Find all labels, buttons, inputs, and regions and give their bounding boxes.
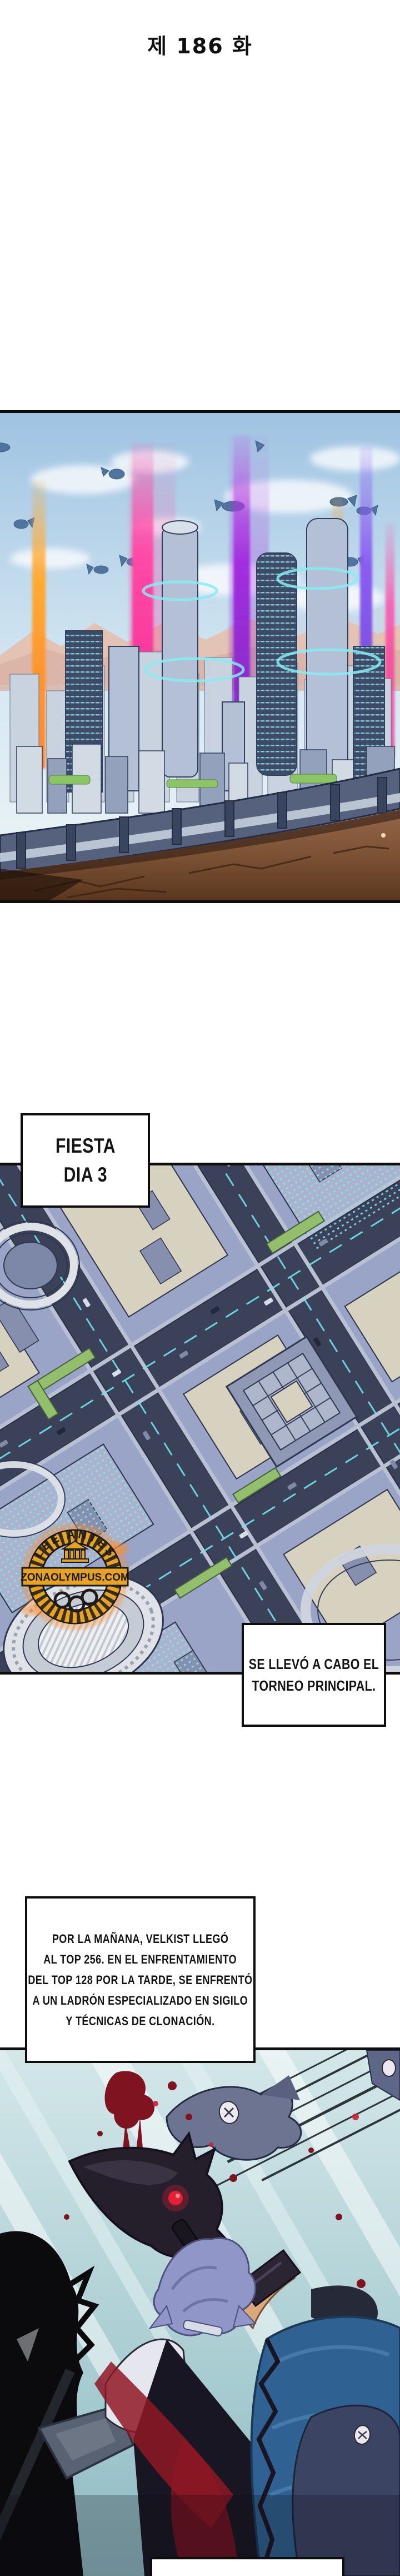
caption-line: FIESTA — [55, 1132, 115, 1160]
caption-line: AL TOP 256. EN EL ENFRENTAMIENTO — [44, 1949, 237, 1970]
caption-line: Y TÉCNICAS DE CLONACIÓN. — [66, 2011, 214, 2031]
watermark-stamp: LEE ANTES ZONAOLYMPUS.COM — [21, 1528, 129, 1626]
caption-line: DIA 3 — [63, 1160, 107, 1189]
battle-art — [0, 2050, 400, 2576]
caption-box-morning: POR LA MAÑANA, VELKIST LLEGÓ AL TOP 256.… — [25, 1896, 256, 2063]
caption-box-torneo: SE LLEVÓ A CABO EL TORNEO PRINCIPAL. — [242, 1623, 386, 1727]
panel-city-skyline — [0, 410, 400, 903]
caption-line: A UN LADRÓN ESPECIALIZADO EN SIGILO — [33, 1990, 248, 2011]
watermark-site-label: ZONAOLYMPUS.COM — [21, 1572, 129, 1583]
chapter-title: 제 186 화 — [0, 29, 400, 59]
caption-line: SE LLEVÓ A CABO EL — [249, 1653, 379, 1675]
panel-aerial-city: LEE ANTES ZONAOLYMPUS.COM — [0, 1163, 400, 1675]
city-skyline-art — [0, 413, 400, 900]
panel-battle — [0, 2047, 400, 2576]
caption-line: TORNEO PRINCIPAL. — [252, 1675, 376, 1697]
caption-box-cutoff — [150, 2557, 344, 2576]
aerial-city-art: LEE ANTES ZONAOLYMPUS.COM — [0, 1165, 400, 1672]
caption-box-fiesta: FIESTA DIA 3 — [21, 1113, 150, 1208]
comic-page: 제 186 화 — [0, 0, 400, 2576]
caption-line: DEL TOP 128 POR LA TARDE, SE ENFRENTÓ — [28, 1970, 252, 1990]
caption-line: POR LA MAÑANA, VELKIST LLEGÓ — [52, 1929, 228, 1949]
